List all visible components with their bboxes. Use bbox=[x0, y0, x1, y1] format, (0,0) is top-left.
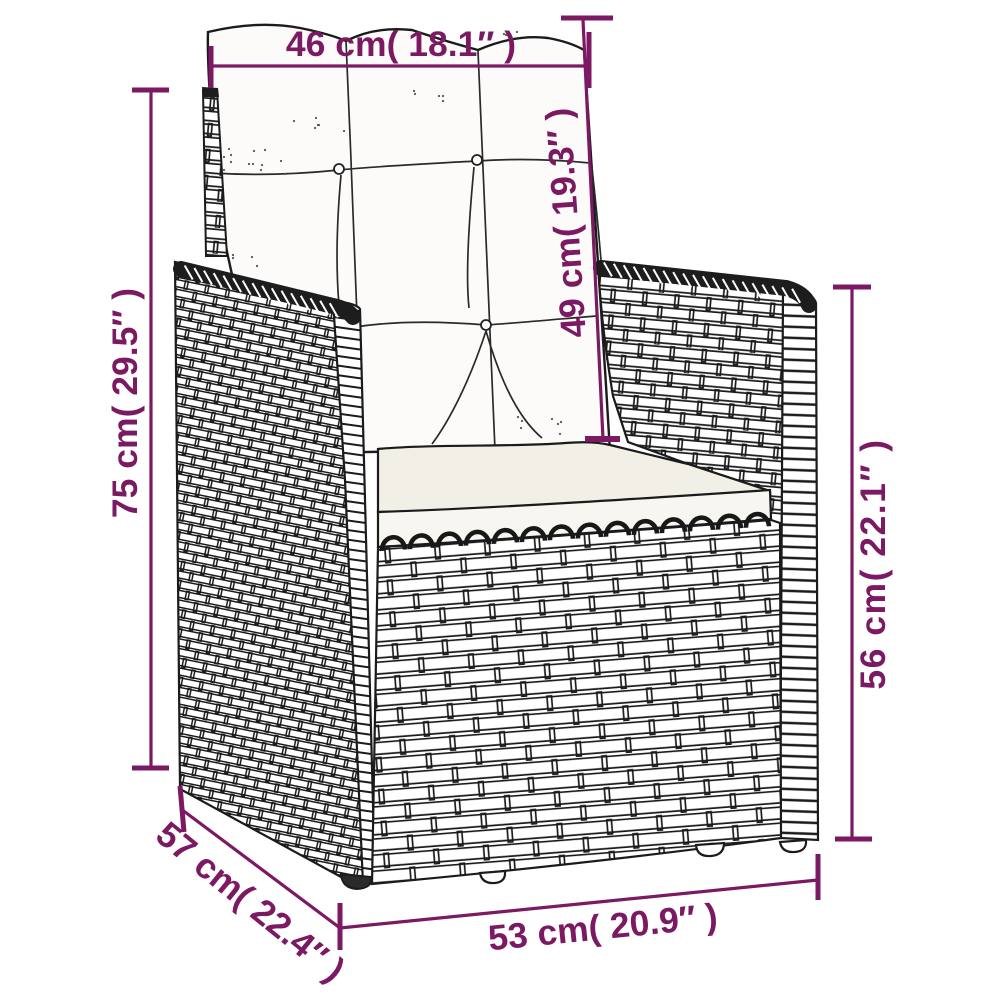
svg-text:56 cm( 22.1″ ): 56 cm( 22.1″ ) bbox=[853, 438, 893, 689]
svg-text:75 cm( 29.5″ ): 75 cm( 29.5″ ) bbox=[105, 288, 145, 518]
svg-text:46 cm( 18.1″ ): 46 cm( 18.1″ ) bbox=[286, 24, 516, 64]
